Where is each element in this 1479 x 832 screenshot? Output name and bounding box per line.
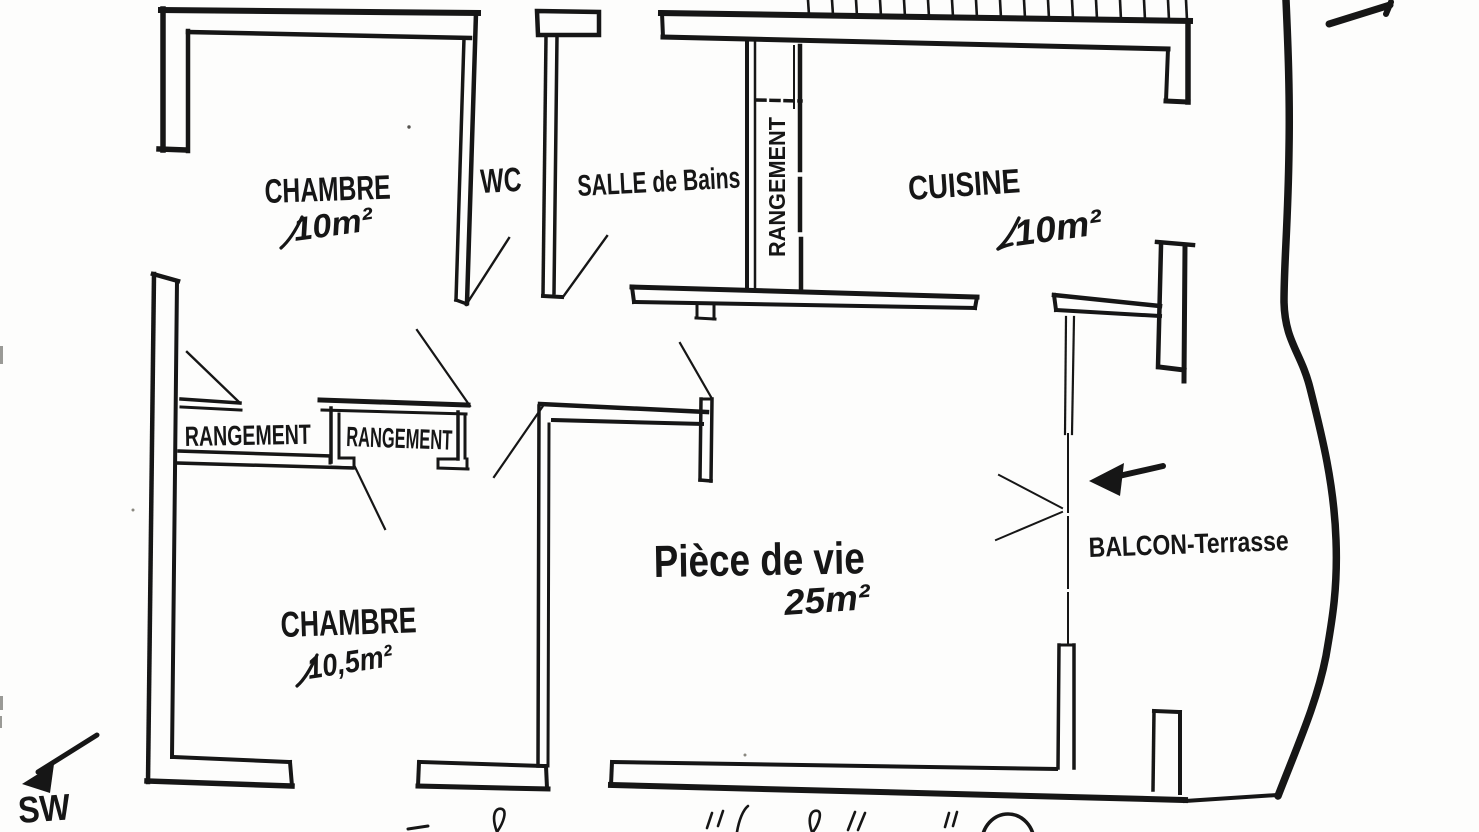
- svg-text:CUISINE: CUISINE: [907, 162, 1021, 208]
- svg-text:WC: WC: [479, 161, 522, 201]
- svg-text:RANGEMENT: RANGEMENT: [346, 421, 453, 456]
- svg-text:25m²: 25m²: [782, 576, 873, 623]
- svg-text:SW: SW: [17, 786, 72, 831]
- svg-text:CHAMBRE: CHAMBRE: [264, 169, 391, 211]
- svg-text:RANGEMENT: RANGEMENT: [185, 419, 312, 452]
- svg-text:CHAMBRE: CHAMBRE: [280, 599, 417, 645]
- svg-text:RANGEMENT: RANGEMENT: [764, 117, 790, 257]
